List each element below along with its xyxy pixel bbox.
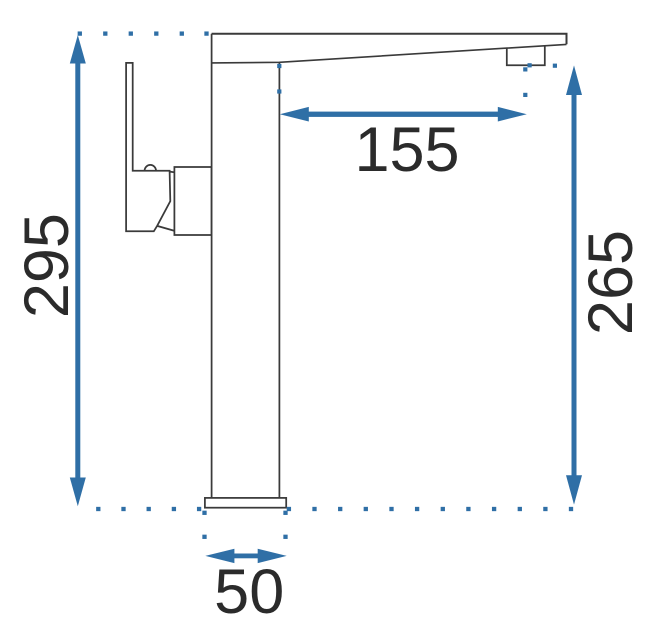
svg-text:295: 295 — [12, 213, 82, 318]
svg-text:50: 50 — [214, 557, 284, 627]
svg-text:265: 265 — [576, 230, 646, 335]
svg-text:155: 155 — [354, 115, 459, 185]
